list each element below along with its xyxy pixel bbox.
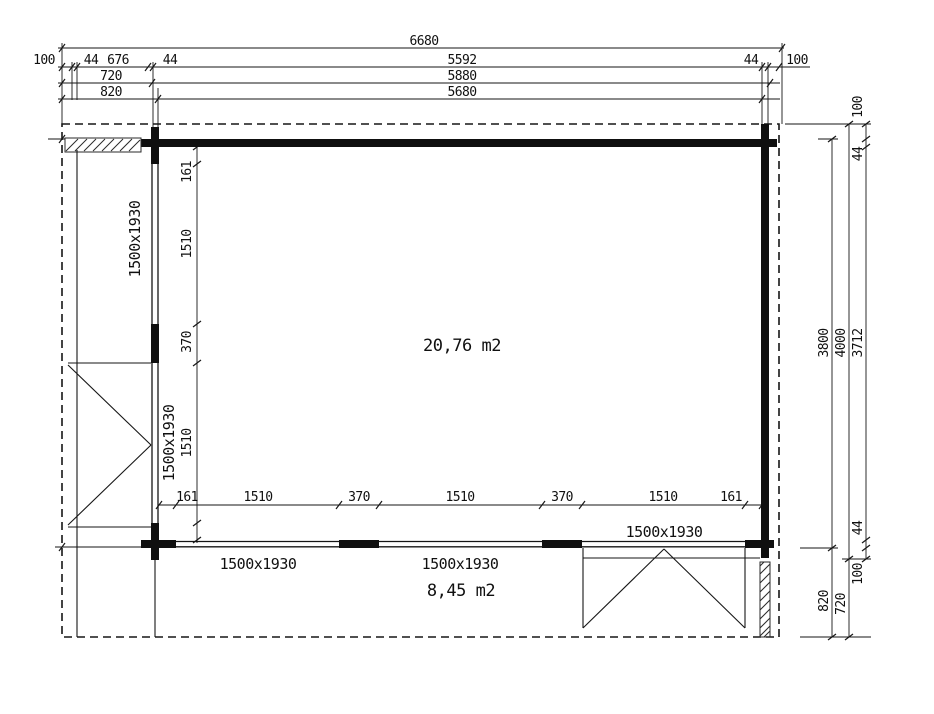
main-room-area-label: 20,76 m2: [423, 336, 501, 356]
floor-plan-page: 6680 100 44 676 44 5592 44 100 720 5880 …: [0, 0, 934, 714]
dim-1510-ba: 1510: [244, 490, 273, 505]
dim-1510-bc: 1510: [649, 490, 678, 505]
hatched-post-top-left: [65, 138, 141, 152]
wall-bottom-seg-c: [542, 540, 582, 548]
dim-total-width: 6680: [410, 34, 439, 49]
wall-bottom-seg-a: [141, 540, 176, 548]
dim-5880: 5880: [448, 69, 477, 84]
dim-interior-width: 5592: [448, 53, 477, 68]
dim-1510-bb: 1510: [446, 490, 475, 505]
dim-wall-right: 44: [744, 53, 759, 68]
dim-overhang-left: 100: [33, 53, 55, 68]
dim-44-top: 44: [851, 146, 866, 161]
dim-1510-left-a: 1510: [180, 230, 195, 259]
dim-wall-left: 44: [163, 53, 178, 68]
hatched-post-bottom-right: [760, 562, 770, 637]
porch-lines: [48, 135, 760, 637]
left-door-size-label: 1500x1930: [160, 404, 178, 481]
roof-outline: [62, 124, 779, 637]
bottom-door-swing: [583, 548, 745, 628]
dim-3800: 3800: [817, 329, 832, 358]
dim-820-right: 820: [817, 590, 832, 612]
dim-porch-width: 676: [107, 53, 129, 68]
left-dimension-column: 161 1510 370 1510: [180, 144, 201, 543]
floor-plan-drawing: 6680 100 44 676 44 5592 44 100 720 5880 …: [0, 0, 934, 714]
dim-100-top: 100: [851, 96, 866, 118]
dim-3712: 3712: [851, 329, 866, 358]
wall-bottom-seg-b: [339, 540, 379, 548]
dim-1510-left-b: 1510: [180, 429, 195, 458]
dim-720-right: 720: [834, 593, 849, 615]
dim-370-left: 370: [180, 331, 195, 353]
dim-5680: 5680: [448, 85, 477, 100]
dim-370-ba: 370: [348, 490, 370, 505]
dim-820: 820: [100, 85, 122, 100]
bottom-dimension-row: 161 1510 370 1510 370 1510 161: [156, 490, 765, 509]
dim-post-left: 44: [84, 53, 99, 68]
dim-720: 720: [100, 69, 122, 84]
dim-44-bottom: 44: [851, 520, 866, 535]
bottom-window-1-size-label: 1500x1930: [220, 555, 297, 573]
dim-370-bb: 370: [551, 490, 573, 505]
dim-161-ba: 161: [176, 490, 198, 505]
wall-left-seg-a: [151, 127, 159, 164]
dim-100-bottom: 100: [851, 563, 866, 585]
wall-right: [761, 124, 769, 558]
porch-area-label: 8,45 m2: [427, 581, 495, 601]
dim-161-bb: 161: [720, 490, 742, 505]
left-window-size-label: 1500x1930: [126, 200, 144, 277]
dim-overhang-right: 100: [786, 53, 808, 68]
left-door-swing: [68, 363, 151, 527]
wall-bottom-seg-d: [745, 540, 774, 548]
wall-top: [141, 139, 777, 147]
dim-4000: 4000: [834, 329, 849, 358]
right-dimension-column: 3800 820 4000 720 100 44 3712 44 100: [785, 96, 871, 640]
wall-left-seg-b: [151, 324, 159, 363]
dim-161-top: 161: [180, 161, 195, 183]
bottom-door-size-label: 1500x1930: [626, 523, 703, 541]
bottom-window-2-size-label: 1500x1930: [422, 555, 499, 573]
